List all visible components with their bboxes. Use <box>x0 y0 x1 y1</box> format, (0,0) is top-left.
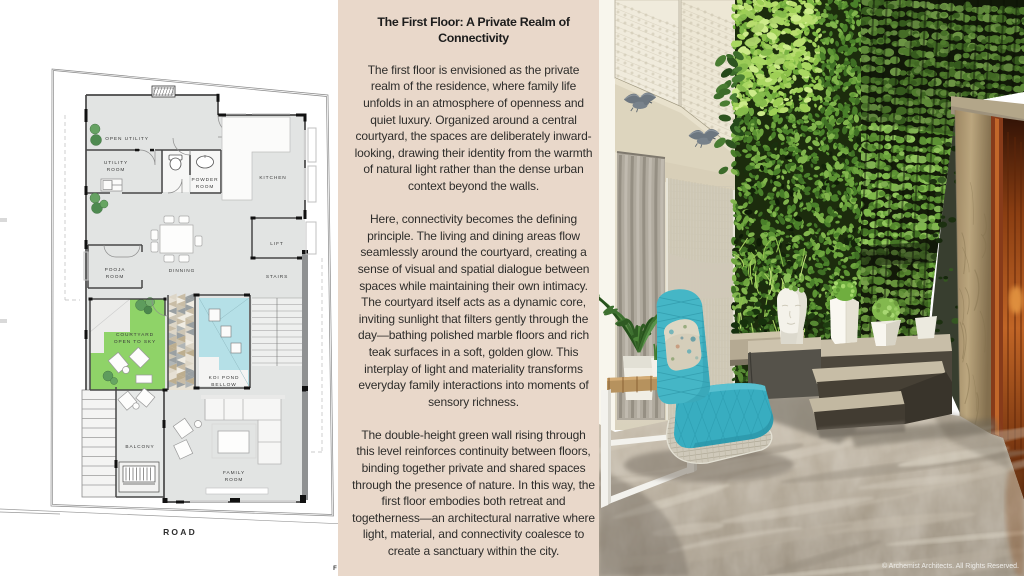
svg-text:DINNING: DINNING <box>169 268 196 274</box>
svg-text:F: F <box>333 566 337 572</box>
svg-text:ROOM: ROOM <box>106 274 125 280</box>
svg-text:OPEN TO SKY: OPEN TO SKY <box>114 339 156 345</box>
svg-text:OPEN UTILITY: OPEN UTILITY <box>105 136 149 142</box>
svg-text:STAIRS: STAIRS <box>266 274 288 280</box>
svg-text:© Archemist Architects. All Ri: © Archemist Architects. All Rights Reser… <box>882 562 1019 570</box>
svg-text:ROAD: ROAD <box>163 527 197 537</box>
svg-text:BELLOW: BELLOW <box>211 382 236 388</box>
svg-text:UTILITY: UTILITY <box>104 160 128 166</box>
svg-text:KITCHEN: KITCHEN <box>259 175 286 181</box>
svg-text:COURTYARD: COURTYARD <box>116 332 154 338</box>
svg-text:BALCONY: BALCONY <box>125 444 154 450</box>
svg-text:KOI POND: KOI POND <box>209 375 240 381</box>
svg-text:POOJA: POOJA <box>105 267 126 273</box>
svg-text:LIFT: LIFT <box>270 241 283 247</box>
svg-text:POWDER: POWDER <box>192 177 219 183</box>
svg-text:ROOM: ROOM <box>225 477 244 483</box>
svg-text:ROOM: ROOM <box>196 184 215 190</box>
svg-text:FAMILY: FAMILY <box>223 470 245 476</box>
svg-text:ROOM: ROOM <box>107 167 126 173</box>
